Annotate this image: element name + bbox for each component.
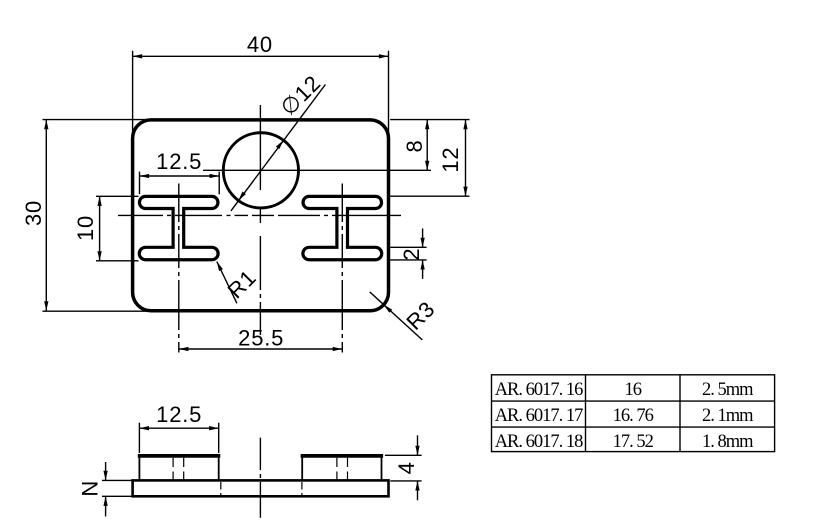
svg-text:25.5: 25.5 xyxy=(238,325,284,350)
svg-text:2: 2 xyxy=(399,248,424,261)
svg-text:17. 52: 17. 52 xyxy=(613,432,654,452)
svg-text:2. 1mm: 2. 1mm xyxy=(702,406,754,426)
svg-text:1. 8mm: 1. 8mm xyxy=(702,432,754,452)
svg-text:10: 10 xyxy=(73,215,98,241)
svg-text:AR. 6017. 16: AR. 6017. 16 xyxy=(495,380,583,400)
svg-text:2. 5mm: 2. 5mm xyxy=(702,380,754,400)
svg-text:12.5: 12.5 xyxy=(156,402,202,427)
svg-text:12: 12 xyxy=(438,147,463,173)
svg-text:AR. 6017. 17: AR. 6017. 17 xyxy=(495,406,583,426)
svg-text:16. 76: 16. 76 xyxy=(613,406,654,426)
svg-text:12.5: 12.5 xyxy=(156,149,202,174)
svg-text:4: 4 xyxy=(394,461,419,474)
svg-text:8: 8 xyxy=(402,139,427,152)
svg-text:AR. 6017. 18: AR. 6017. 18 xyxy=(495,432,583,452)
svg-text:N: N xyxy=(77,480,102,497)
svg-text:40: 40 xyxy=(247,32,273,57)
svg-text:30: 30 xyxy=(21,200,46,226)
svg-text:16: 16 xyxy=(624,380,641,400)
